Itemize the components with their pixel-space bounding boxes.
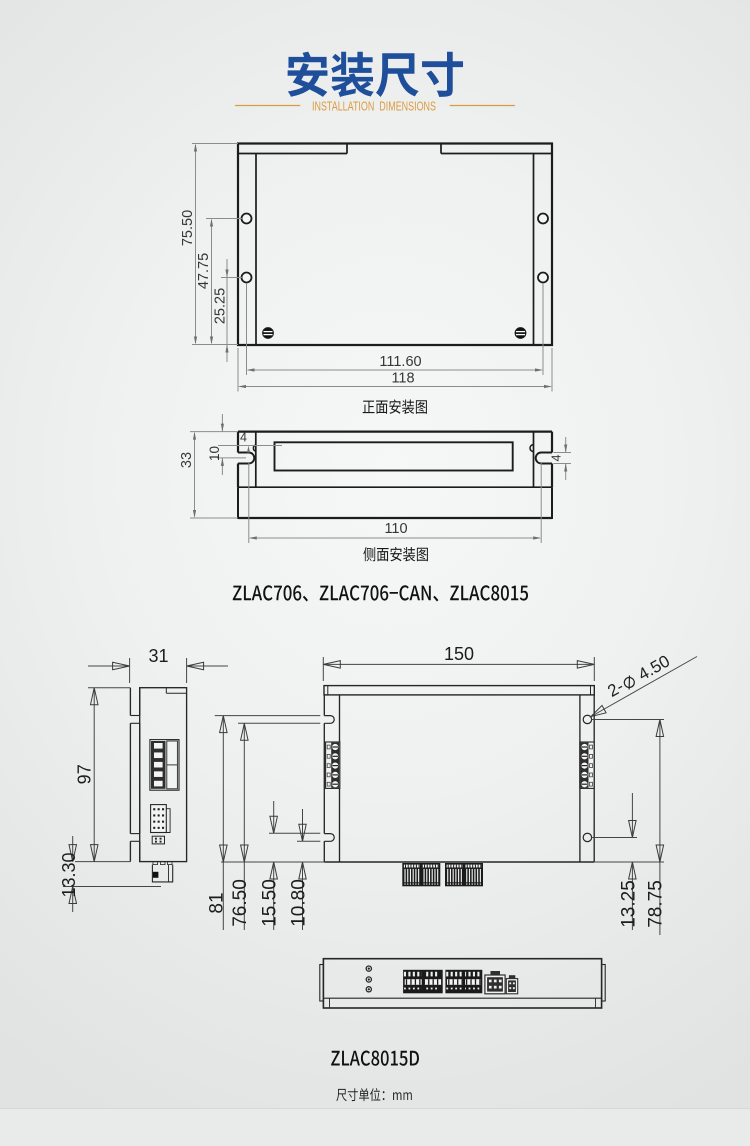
svg-text:4: 4 bbox=[240, 431, 247, 445]
svg-text:4.50: 4.50 bbox=[635, 651, 673, 684]
svg-text:150: 150 bbox=[444, 644, 474, 664]
svg-text:10: 10 bbox=[207, 446, 222, 461]
svg-text:47.75: 47.75 bbox=[196, 253, 212, 289]
svg-text:15.50: 15.50 bbox=[260, 879, 281, 927]
svg-text:110: 110 bbox=[384, 521, 407, 537]
svg-text:97: 97 bbox=[75, 764, 95, 784]
svg-text:111.60: 111.60 bbox=[379, 354, 421, 370]
svg-text:10.80: 10.80 bbox=[288, 879, 309, 927]
svg-text:13.30: 13.30 bbox=[59, 852, 79, 897]
svg-text:33: 33 bbox=[179, 452, 195, 468]
svg-text:4: 4 bbox=[550, 454, 564, 461]
svg-text:31: 31 bbox=[148, 646, 168, 666]
svg-text:13.25: 13.25 bbox=[618, 880, 639, 928]
svg-text:81: 81 bbox=[207, 892, 228, 913]
svg-text:25.25: 25.25 bbox=[213, 288, 229, 324]
svg-text:2-: 2- bbox=[604, 677, 627, 701]
svg-text:INSTALLATION DIMENSIONS: INSTALLATION DIMENSIONS bbox=[312, 100, 436, 114]
svg-text:75.50: 75.50 bbox=[180, 210, 196, 246]
svg-text:78.75: 78.75 bbox=[646, 880, 667, 928]
svg-text:118: 118 bbox=[391, 371, 414, 387]
svg-text:76.50: 76.50 bbox=[230, 879, 251, 927]
